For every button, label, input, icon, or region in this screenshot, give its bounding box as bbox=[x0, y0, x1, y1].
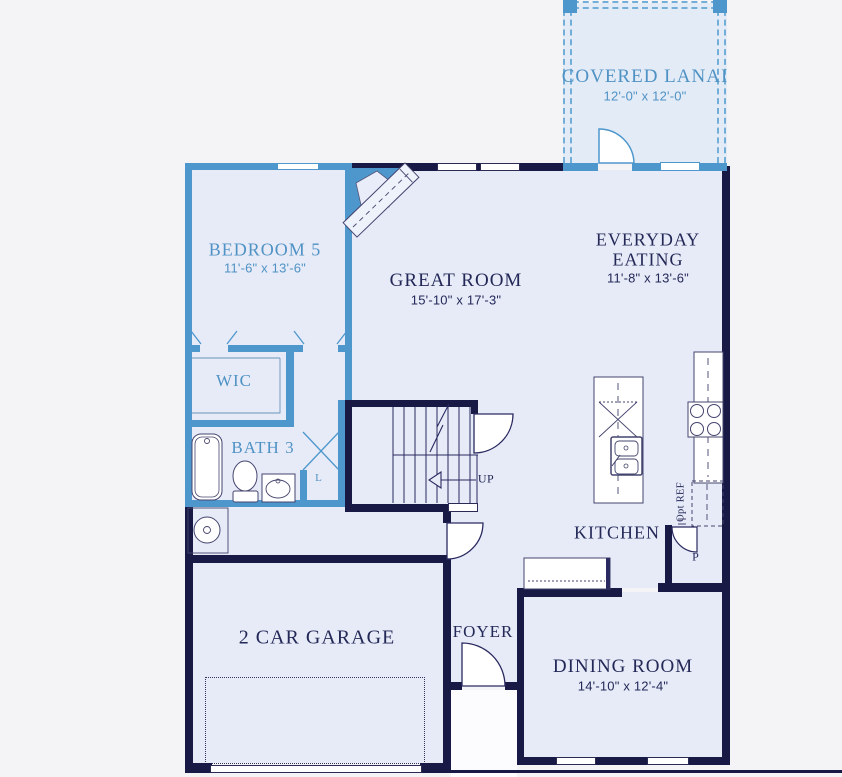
bar-counter-end bbox=[606, 558, 610, 589]
wic-label: WIC bbox=[216, 371, 252, 391]
kitchen-label: KITCHEN bbox=[574, 523, 660, 544]
pantry-door-arc bbox=[672, 527, 697, 552]
stairs-up-label: UP bbox=[478, 472, 494, 487]
dining-room-label: DINING ROOM bbox=[553, 656, 693, 678]
everyday-eating-label-line2: EATING bbox=[613, 250, 684, 271]
pantry-label: P bbox=[692, 550, 700, 565]
fixtures-layer bbox=[0, 0, 842, 777]
stair-break-line bbox=[430, 404, 449, 452]
toilet-base bbox=[233, 491, 258, 502]
garage-label: 2 CAR GARAGE bbox=[239, 627, 395, 650]
foyer-label: FOYER bbox=[453, 622, 514, 642]
covered-lanai-dims: 12'-0" x 12'-0" bbox=[604, 89, 687, 104]
dining-room-dims: 14'-10" x 12'-4" bbox=[578, 679, 668, 694]
bedroom5-dims: 11'-6" x 13'-6" bbox=[224, 261, 306, 276]
stair-treads bbox=[393, 407, 478, 503]
opt-refrigerator bbox=[692, 481, 723, 526]
everyday-eating-label-line1: EVERYDAY bbox=[596, 230, 700, 251]
water-heater bbox=[194, 517, 220, 543]
up-arrow-head bbox=[429, 472, 441, 488]
floor-plan: COVERED LANAI 12'-0" x 12'-0" BEDROOM 5 … bbox=[0, 0, 842, 777]
range bbox=[688, 402, 723, 437]
great-room-dims: 15'-10" x 17'-3" bbox=[411, 293, 501, 308]
bath3-label: BATH 3 bbox=[231, 438, 294, 458]
understair-closet-door-arc bbox=[474, 414, 513, 453]
covered-lanai-label: COVERED LANAI bbox=[562, 66, 729, 88]
great-room-label: GREAT ROOM bbox=[390, 270, 523, 292]
toilet-bowl bbox=[233, 461, 257, 491]
bedroom5-label: BEDROOM 5 bbox=[209, 240, 322, 261]
lanai-door-arc bbox=[599, 129, 634, 163]
bar-counter bbox=[524, 558, 610, 589]
front-door-arc bbox=[462, 643, 505, 686]
everyday-eating-dims: 11'-8" x 13'-6" bbox=[607, 271, 689, 286]
linen-label: L bbox=[315, 472, 323, 484]
garage-entry-door-arc bbox=[447, 523, 483, 559]
opt-ref-label: Opt REF bbox=[676, 482, 687, 522]
